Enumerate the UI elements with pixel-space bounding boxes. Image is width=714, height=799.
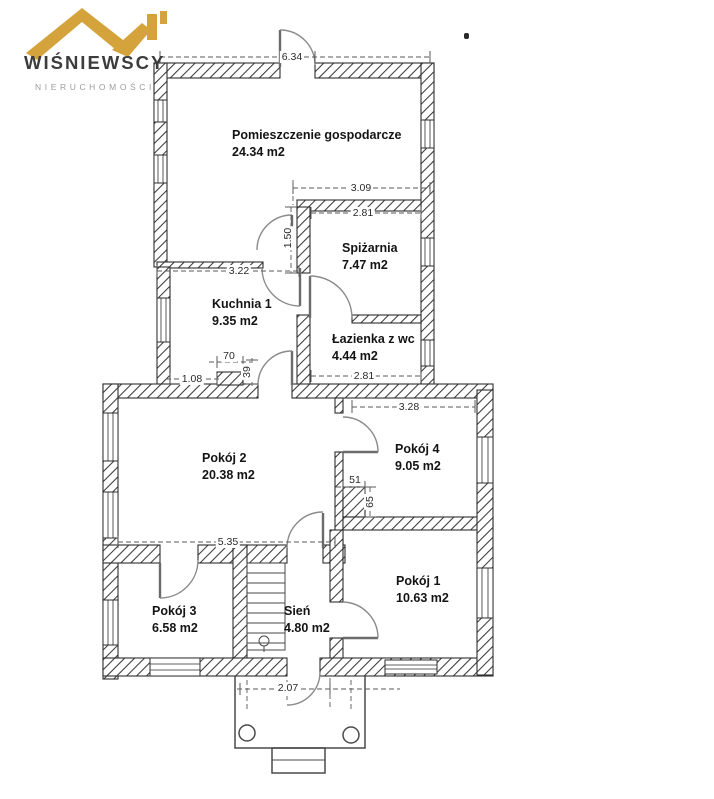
window [103, 492, 118, 538]
dim-label: 2.81 [352, 370, 376, 382]
window [103, 413, 118, 461]
dim-label: 70 [221, 350, 237, 362]
window [154, 100, 167, 122]
room-label-pokoj3: Pokój 3 6.58 m2 [152, 603, 198, 637]
window [421, 120, 434, 148]
room-area: 7.47 m2 [342, 257, 398, 274]
dim-label: 3.22 [227, 265, 251, 277]
brand-name: WIŚNIEWSCY [24, 52, 165, 74]
room-label-pokoj1: Pokój 1 10.63 m2 [396, 573, 449, 607]
brand-subtitle: NIERUCHOMOŚCI [35, 82, 155, 92]
porch-post [343, 727, 359, 743]
room-area: 9.05 m2 [395, 458, 441, 475]
room-name: Pomieszczenie gospodarcze [232, 127, 402, 144]
floor-plan-drawing [0, 0, 714, 799]
door-sien-pokoj1 [343, 602, 378, 638]
room-name: Pokój 2 [202, 450, 255, 467]
dim-label: 3.09 [349, 182, 373, 194]
room-label-spizarnia: Spiżarnia 7.47 m2 [342, 240, 398, 274]
window [477, 568, 493, 618]
door-spizarnia [310, 276, 352, 318]
room-label-lazienka: Łazienka z wc 4.44 m2 [332, 331, 415, 365]
door-kuchnia-pokoj2 [258, 351, 292, 385]
dim-label: 2.07 [276, 682, 300, 694]
staircase [247, 563, 285, 652]
room-label-kuchnia: Kuchnia 1 9.35 m2 [212, 296, 272, 330]
window [157, 298, 170, 342]
window [477, 437, 493, 483]
door-pokoj2-pokoj4 [343, 417, 378, 452]
room-name: Pokój 3 [152, 603, 198, 620]
room-area: 9.35 m2 [212, 313, 272, 330]
door-pokoj3 [160, 560, 198, 598]
room-name: Kuchnia 1 [212, 296, 272, 313]
room-name: Spiżarnia [342, 240, 398, 257]
room-name: Łazienka z wc [332, 331, 415, 348]
floor-plan-page: WIŚNIEWSCY NIERUCHOMOŚCI Pomieszczenie g… [0, 0, 714, 799]
dim-label: 3.28 [397, 401, 421, 413]
brand-logo: WIŚNIEWSCY NIERUCHOMOŚCI [14, 0, 204, 100]
dim-label: 6.34 [280, 51, 304, 63]
porch-post [239, 725, 255, 741]
dim-label: 1.50 [282, 226, 294, 250]
door-sien-pokoj2 [287, 512, 323, 548]
room-area: 6.58 m2 [152, 620, 198, 637]
dim-label: 39 [241, 364, 253, 380]
room-label-pokoj2: Pokój 2 20.38 m2 [202, 450, 255, 484]
dim-label: 51 [347, 474, 363, 486]
window [421, 340, 434, 366]
window [421, 238, 434, 266]
room-name: Pokój 1 [396, 573, 449, 590]
scan-artifact-dot [464, 33, 469, 39]
dim-label: 5.35 [216, 536, 240, 548]
room-name: Pokój 4 [395, 441, 441, 458]
window [385, 660, 437, 674]
room-label-gospodarcze: Pomieszczenie gospodarcze 24.34 m2 [232, 127, 402, 161]
room-label-sien: Sień 4.80 m2 [284, 603, 330, 637]
room-label-pokoj4: Pokój 4 9.05 m2 [395, 441, 441, 475]
dim-label: 1.08 [180, 373, 204, 385]
room-area: 10.63 m2 [396, 590, 449, 607]
room-area: 4.44 m2 [332, 348, 415, 365]
room-area: 4.80 m2 [284, 620, 330, 637]
window [150, 658, 200, 676]
dim-label: 65 [364, 494, 376, 510]
room-area: 20.38 m2 [202, 467, 255, 484]
room-area: 24.34 m2 [232, 144, 402, 161]
dim-label: 2.81 [351, 207, 375, 219]
window [103, 600, 118, 645]
room-name: Sień [284, 603, 330, 620]
window [154, 155, 167, 183]
